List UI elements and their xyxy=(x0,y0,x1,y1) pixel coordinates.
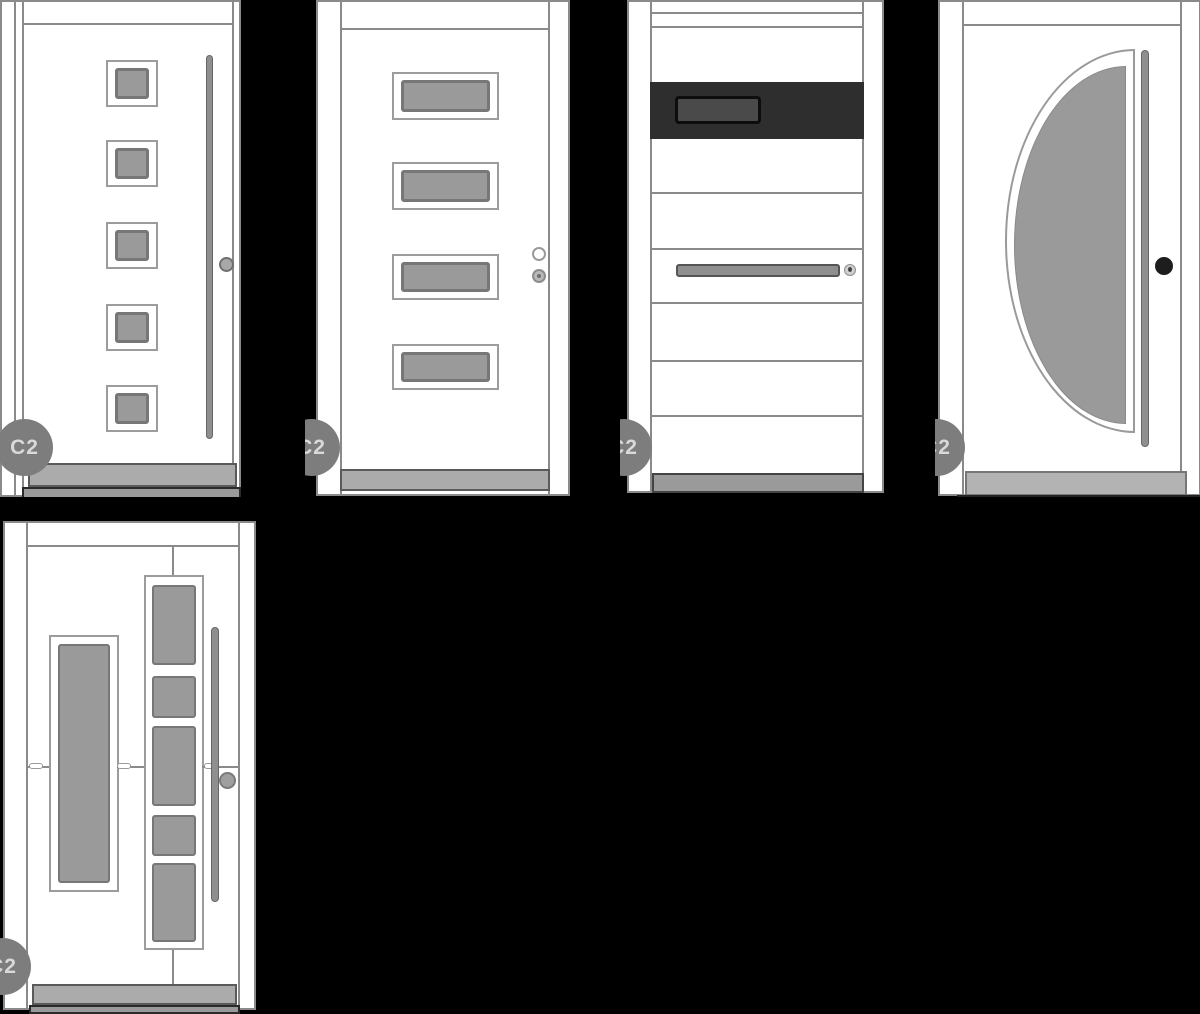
door-slab-edge-right xyxy=(1180,2,1182,494)
door-thumbnail-2[interactable]: C2 xyxy=(305,0,577,497)
square-window-frame xyxy=(106,60,158,107)
horizontal-window-frame xyxy=(392,254,499,300)
door-top-rail-line xyxy=(962,24,1182,26)
door-frame xyxy=(316,0,570,496)
door-frame xyxy=(3,521,256,1010)
column-pane xyxy=(152,726,196,806)
square-window-frame xyxy=(106,304,158,351)
threshold-bar xyxy=(32,984,237,1005)
groove-line xyxy=(650,248,864,250)
door-thumbnail-4[interactable]: C2 xyxy=(935,0,1200,497)
keyhole-dot xyxy=(848,267,852,272)
threshold-bar xyxy=(965,471,1187,496)
horizontal-window-glass xyxy=(401,80,490,112)
square-window-frame xyxy=(106,385,158,432)
door-catalog-grid: C2 C2 xyxy=(0,0,1200,1014)
horizontal-window-frame xyxy=(392,344,499,390)
sill-strip xyxy=(957,495,1200,497)
keyhole-dot xyxy=(537,274,541,278)
band-window-glass xyxy=(675,96,761,124)
threshold-bar xyxy=(340,469,550,491)
horizontal-window-frame xyxy=(392,72,499,120)
groove-line xyxy=(650,360,864,362)
door-knob xyxy=(1155,257,1173,275)
column-pane xyxy=(152,585,196,665)
half-moon-glass xyxy=(1014,66,1126,424)
watermark-label: C2 xyxy=(305,436,326,460)
horizontal-window-glass xyxy=(401,352,490,382)
lock-cylinder xyxy=(532,269,546,283)
door-slab-edge-right xyxy=(862,2,864,491)
horizontal-bar-handle xyxy=(676,264,840,277)
column-pane xyxy=(152,863,196,942)
square-window-glass xyxy=(115,68,149,99)
door-thumbnail-1[interactable]: C2 xyxy=(0,0,242,497)
door-slab-edge-left xyxy=(650,2,652,491)
lock-cylinder xyxy=(844,264,856,276)
door-knob xyxy=(532,247,546,261)
door-top-rail-line xyxy=(26,545,240,547)
watermark-label: C2 xyxy=(10,436,39,460)
center-groove-line-top xyxy=(172,546,174,575)
square-window-frame xyxy=(106,140,158,187)
horizontal-window-frame xyxy=(392,162,499,210)
vertical-bar-handle xyxy=(211,627,219,902)
door-knob xyxy=(219,772,236,789)
door-knob xyxy=(219,257,234,272)
groove-notch xyxy=(29,763,43,769)
square-window-glass xyxy=(115,230,149,261)
square-window-glass xyxy=(115,312,149,343)
panel-column-frame xyxy=(144,575,204,950)
dark-glass-band xyxy=(650,82,864,139)
groove-line xyxy=(650,415,864,417)
groove-line xyxy=(650,192,864,194)
sill-strip xyxy=(22,487,241,497)
door-frame xyxy=(938,0,1200,496)
column-pane xyxy=(152,815,196,856)
sill-strip xyxy=(29,1005,240,1014)
door-top-rail-line xyxy=(22,23,234,25)
tall-window-glass xyxy=(58,644,110,883)
groove-notch xyxy=(117,763,131,769)
threshold-bar xyxy=(652,473,864,493)
horizontal-window-glass xyxy=(401,170,490,202)
door-slab-edge-left xyxy=(962,2,964,494)
square-window-glass xyxy=(115,393,149,424)
groove-line xyxy=(650,12,864,14)
door-thumbnail-3[interactable]: C2 xyxy=(620,0,886,497)
horizontal-window-glass xyxy=(401,262,490,292)
vertical-bar-handle xyxy=(1141,50,1149,447)
column-pane xyxy=(152,676,196,718)
watermark-label: C2 xyxy=(935,436,951,460)
groove-line xyxy=(650,26,864,28)
door-slab-edge-right xyxy=(232,2,234,495)
square-window-frame xyxy=(106,222,158,269)
door-slab-edge-right xyxy=(548,2,550,494)
door-thumbnail-5[interactable]: C2 xyxy=(0,517,259,1014)
center-groove-line-bottom xyxy=(172,950,174,984)
square-window-glass xyxy=(115,148,149,179)
door-slab-edge-left xyxy=(340,2,342,494)
door-top-rail-line xyxy=(340,28,550,30)
watermark-label: C2 xyxy=(0,955,17,979)
door-frame xyxy=(627,0,884,493)
tall-window-frame xyxy=(49,635,119,892)
groove-line xyxy=(650,302,864,304)
vertical-bar-handle xyxy=(206,55,213,439)
watermark-label: C2 xyxy=(620,436,638,460)
threshold-bar xyxy=(28,463,237,487)
